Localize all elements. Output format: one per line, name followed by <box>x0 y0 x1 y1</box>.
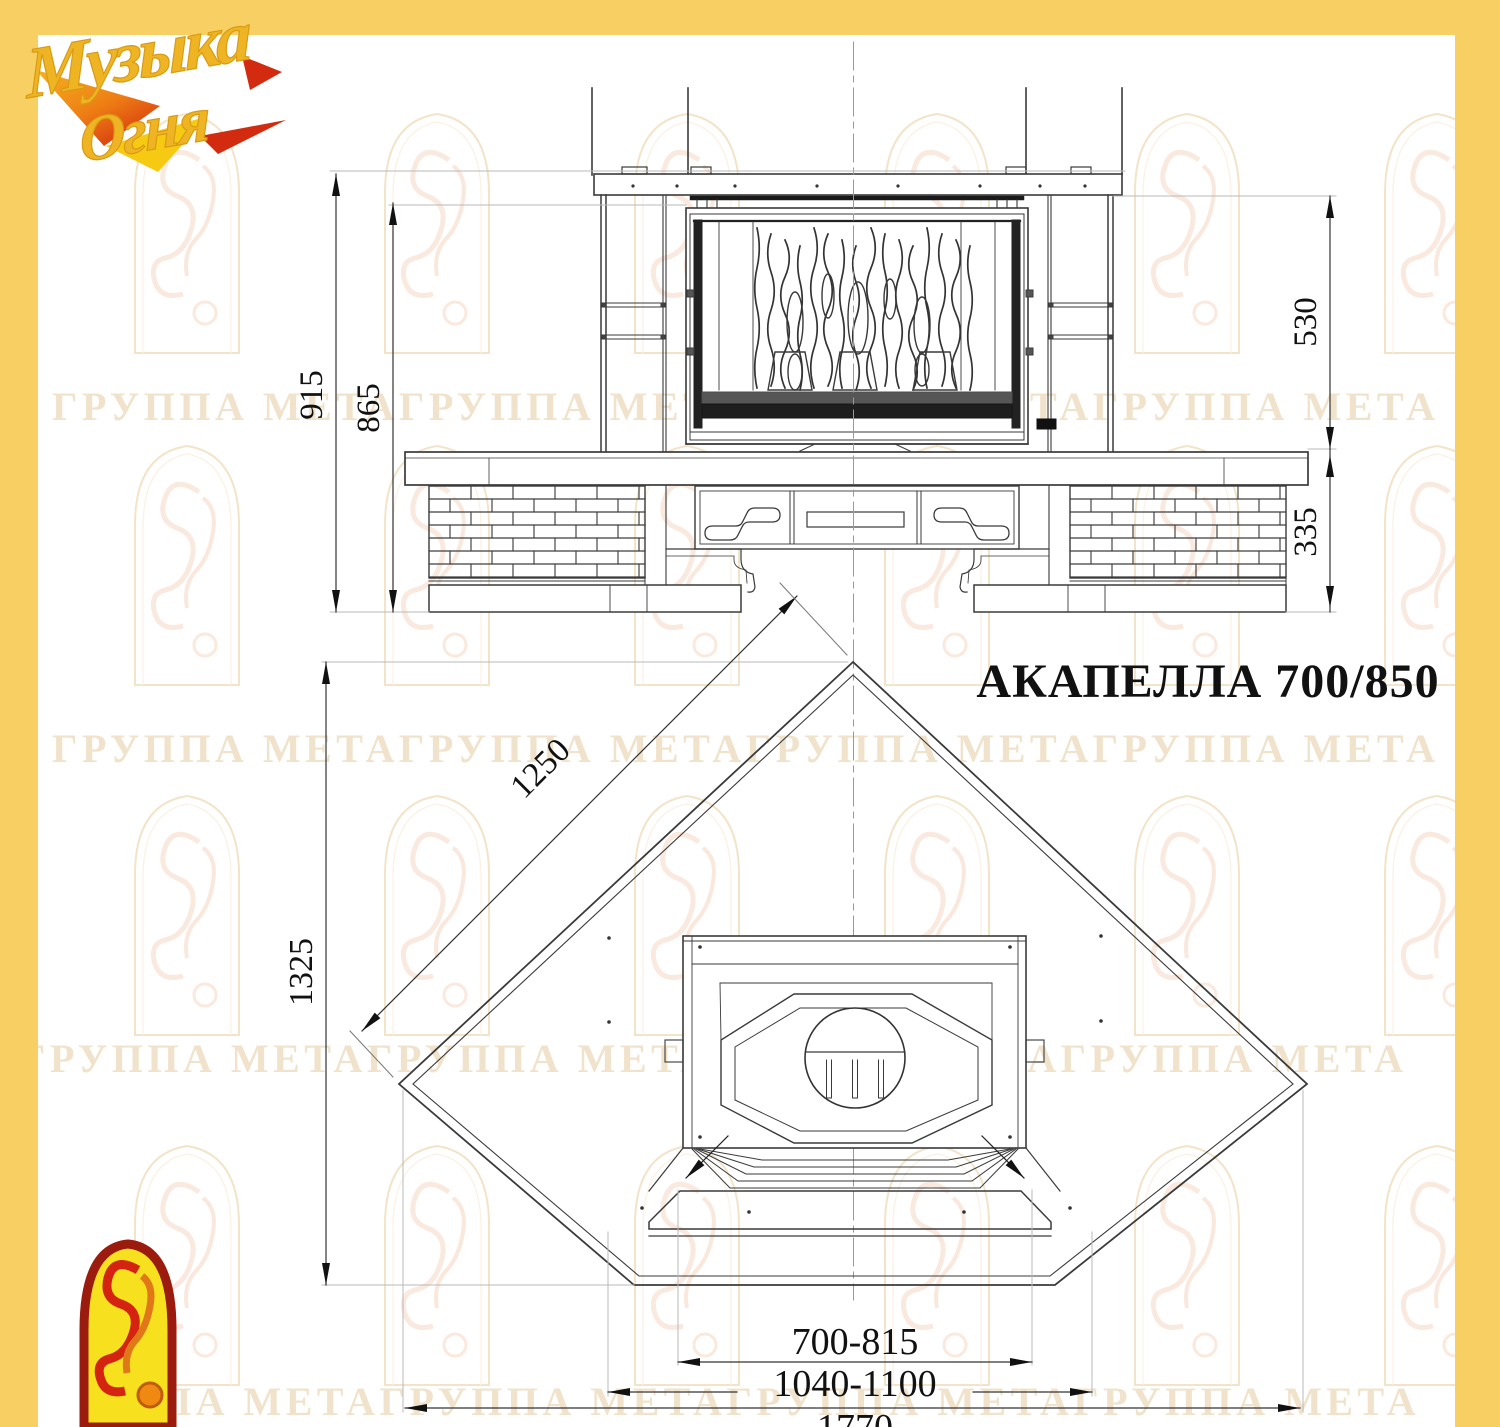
svg-text:1325: 1325 <box>283 938 320 1006</box>
svg-text:АКАПЕЛЛА 700/850: АКАПЕЛЛА 700/850 <box>976 655 1439 708</box>
svg-text:1770: 1770 <box>817 1407 893 1427</box>
svg-text:1040-1100: 1040-1100 <box>773 1363 936 1405</box>
svg-text:915: 915 <box>294 370 330 420</box>
svg-text:335: 335 <box>1288 507 1324 557</box>
svg-text:700-815: 700-815 <box>792 1321 919 1363</box>
svg-text:ГРУППА МЕТАГРУППА МЕТАГРУППА М: ГРУППА МЕТАГРУППА МЕТАГРУППА МЕТАГРУППА … <box>52 726 1439 771</box>
svg-text:530: 530 <box>1288 297 1324 347</box>
svg-text:865: 865 <box>351 383 387 433</box>
